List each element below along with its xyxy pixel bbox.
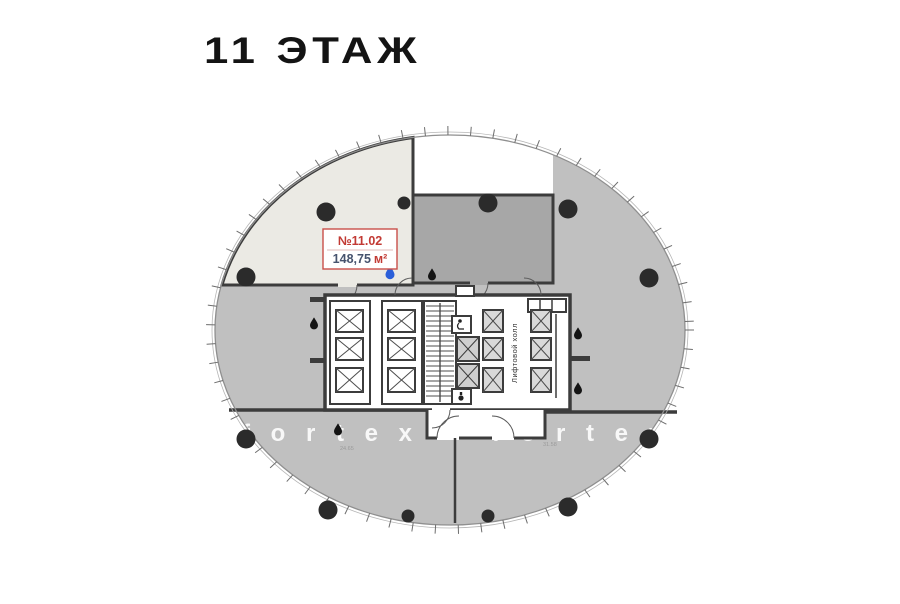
top-void <box>413 128 553 195</box>
core-block: Лифтовой холл <box>325 278 570 410</box>
unit-number: №11.02 <box>338 234 383 248</box>
watermark-text-left: f o r t e x <box>242 420 419 447</box>
unit-area: 148,75м² <box>333 252 388 266</box>
duct-box <box>456 286 474 296</box>
lobby-region <box>427 410 545 438</box>
dimension-label-right: 31.58 <box>543 442 557 448</box>
floor-plan-drawing: f o r t e x f o r t e x <box>0 0 900 604</box>
unit-label-box[interactable]: №11.02 148,75м² <box>323 229 397 269</box>
wc-icon <box>452 316 471 333</box>
bottle-icon <box>452 389 471 404</box>
wall-stub <box>310 358 326 363</box>
floor-plan-page: 11 ЭТАЖ f o r t e x f o r t e x <box>0 0 900 604</box>
wall-stub <box>310 297 326 302</box>
wall-stub <box>570 356 590 361</box>
dimension-label-left: 24.65 <box>340 446 354 452</box>
elevator-hall-label: Лифтовой холл <box>510 323 519 383</box>
